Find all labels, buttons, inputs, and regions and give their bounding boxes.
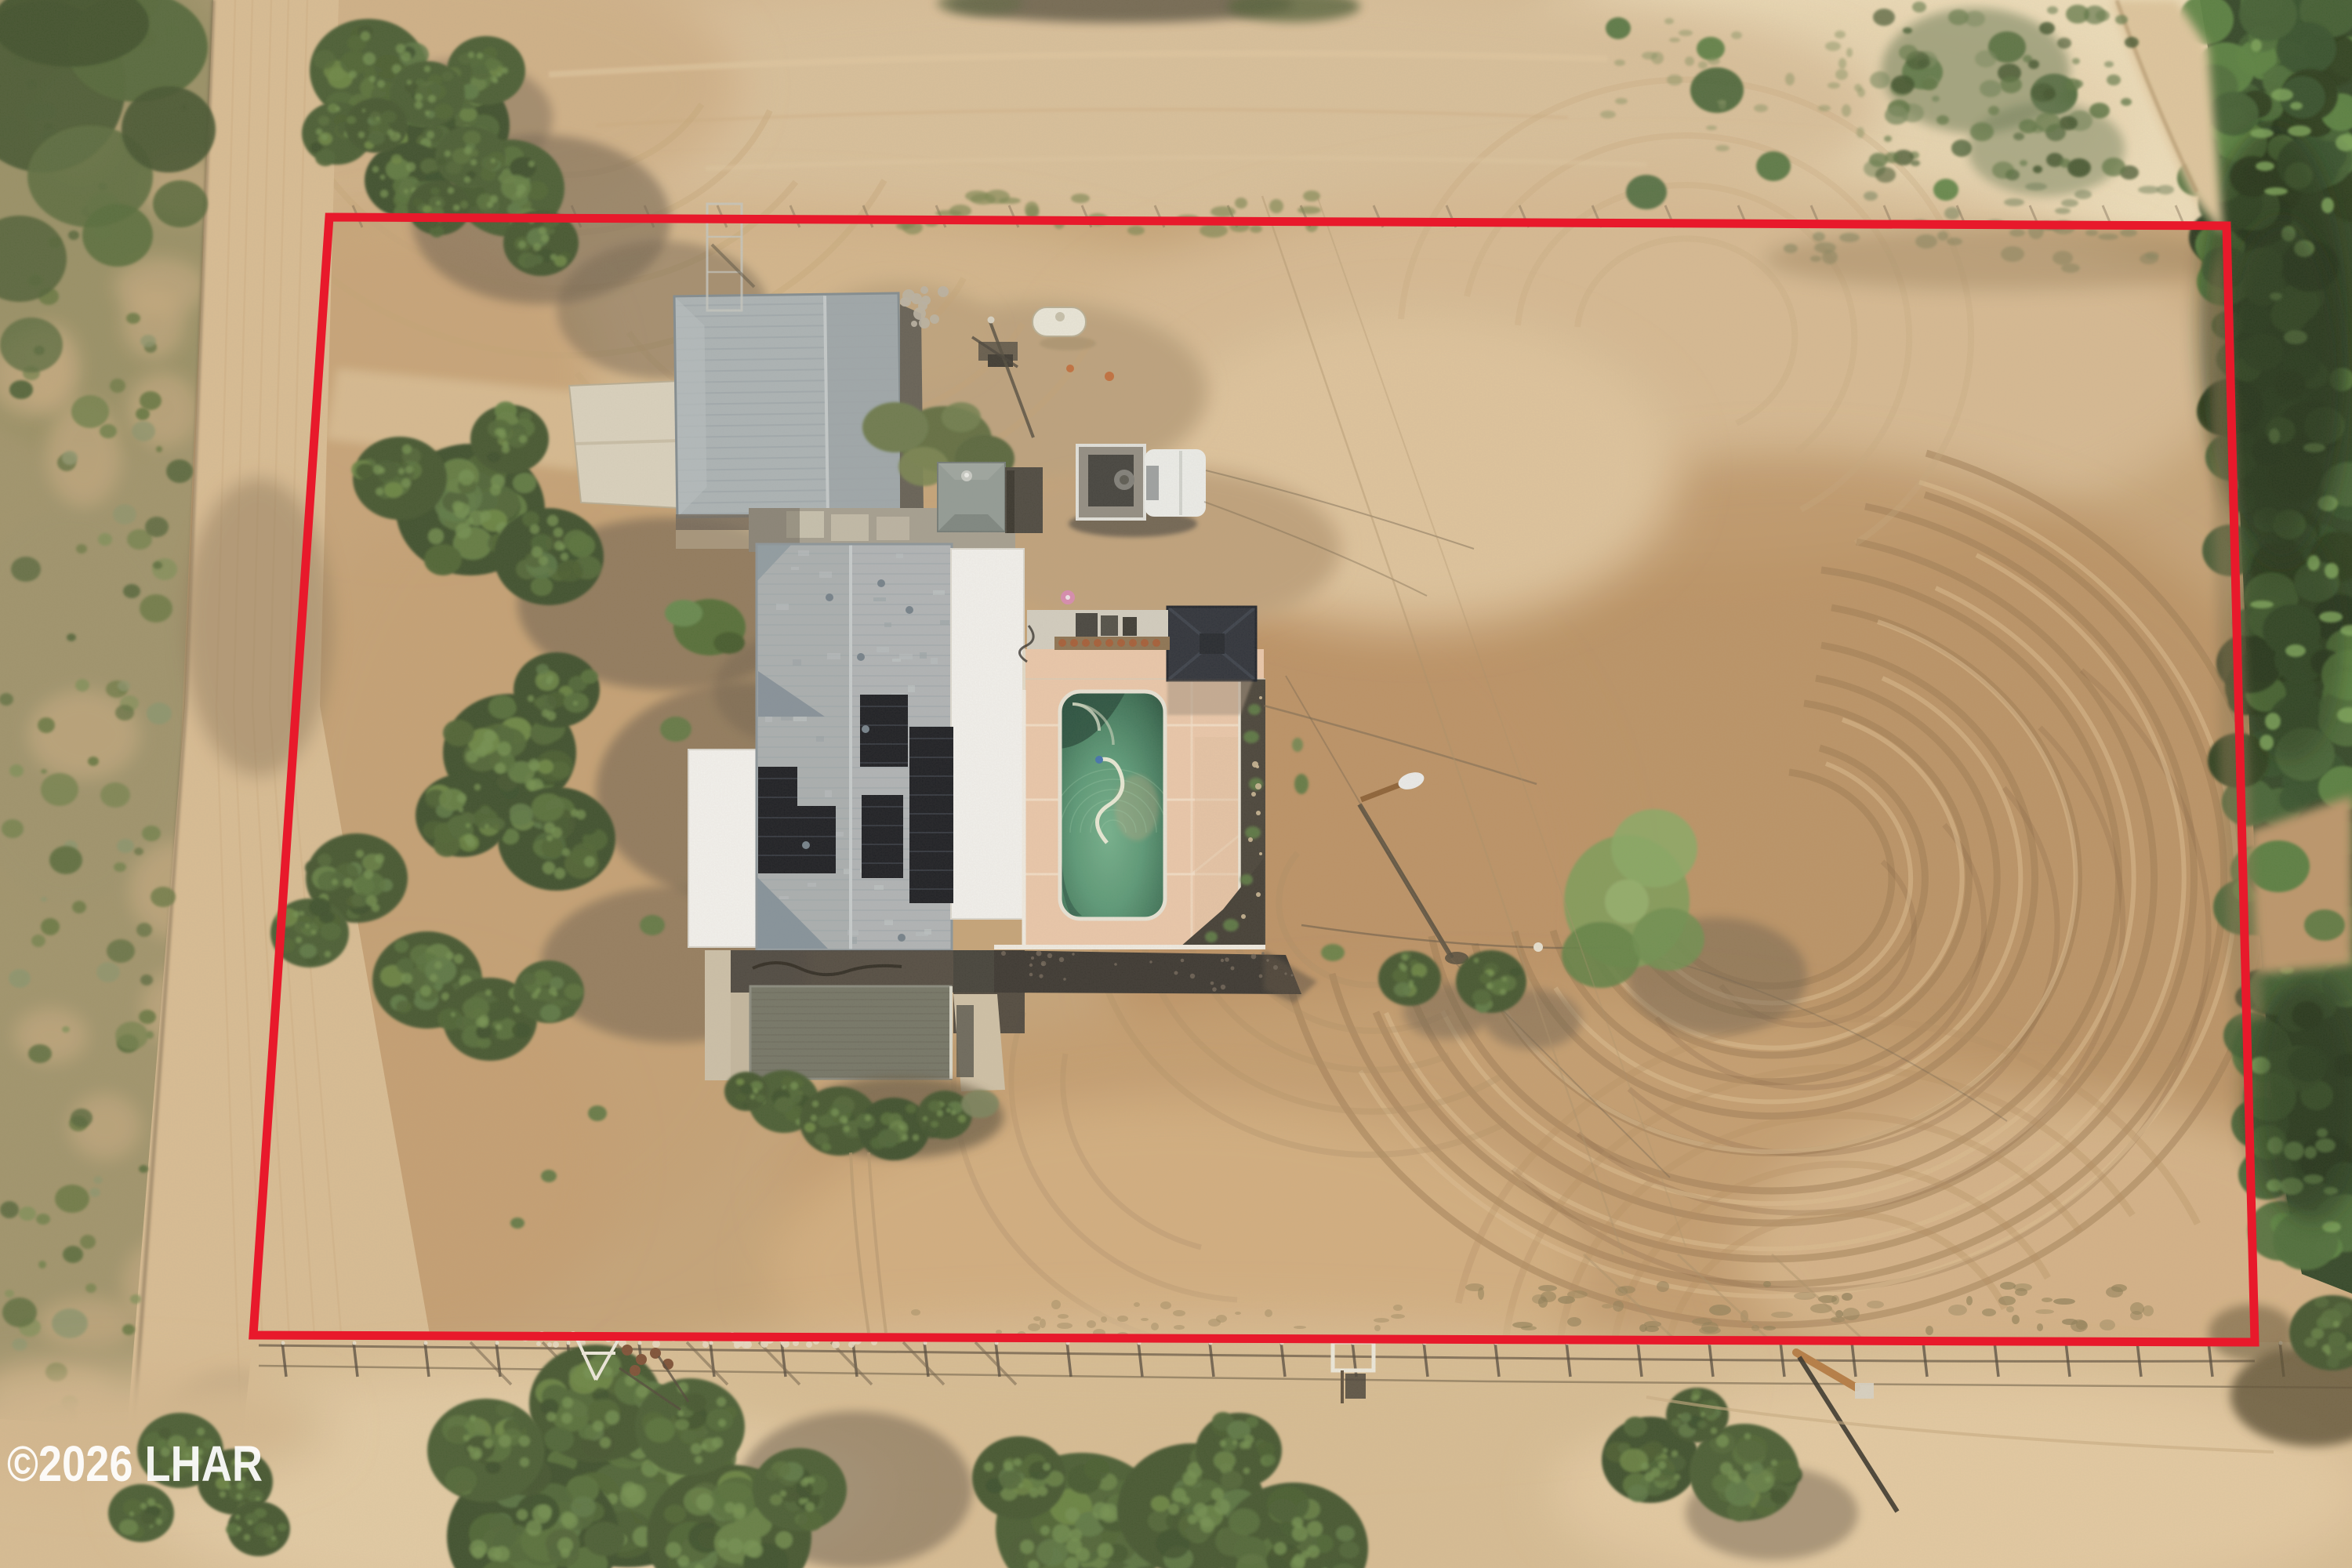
svg-text:©2026 LHAR: ©2026 LHAR bbox=[7, 1436, 263, 1492]
